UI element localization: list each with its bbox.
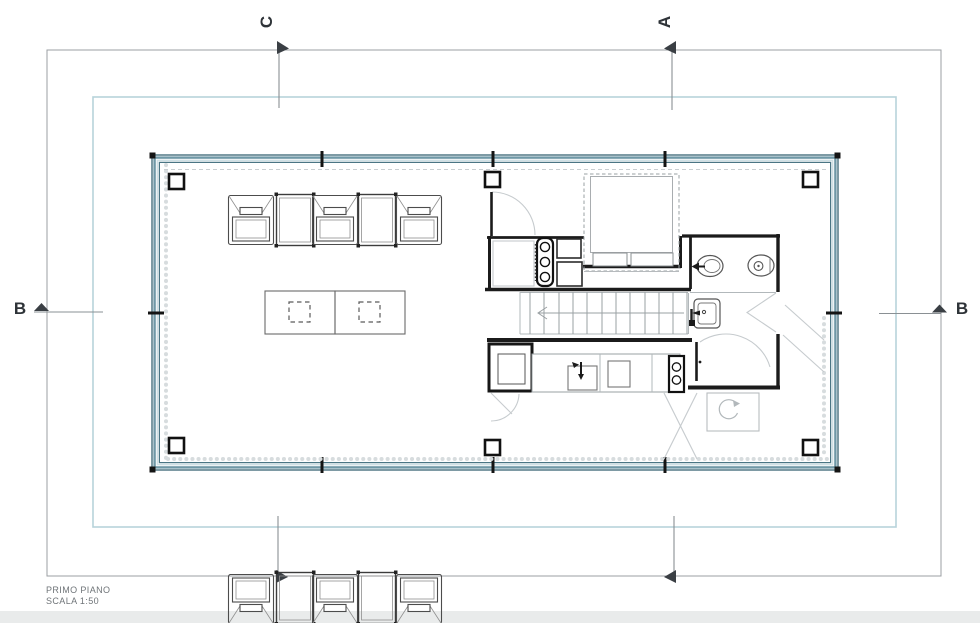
bottom-strip [0, 611, 980, 623]
section-label-b-left: B [14, 299, 26, 318]
pillow [631, 253, 673, 266]
kitchen-counter [532, 354, 680, 392]
section-label-c: C [257, 16, 276, 28]
shelf-unit [557, 239, 581, 258]
stove-unit [669, 356, 684, 392]
bed [584, 174, 679, 272]
pillow [593, 253, 627, 266]
shelf-unit [557, 262, 582, 286]
entry-units [536, 238, 583, 286]
section-label-b-right: B [956, 299, 968, 318]
plan-scale: SCALA 1:50 [46, 596, 99, 606]
floor-plan-svg: C A B B [0, 0, 980, 623]
section-label-a: A [655, 16, 674, 28]
plan-title: PRIMO PIANO [46, 585, 110, 595]
floor-plan-page: C A B B [0, 0, 980, 623]
